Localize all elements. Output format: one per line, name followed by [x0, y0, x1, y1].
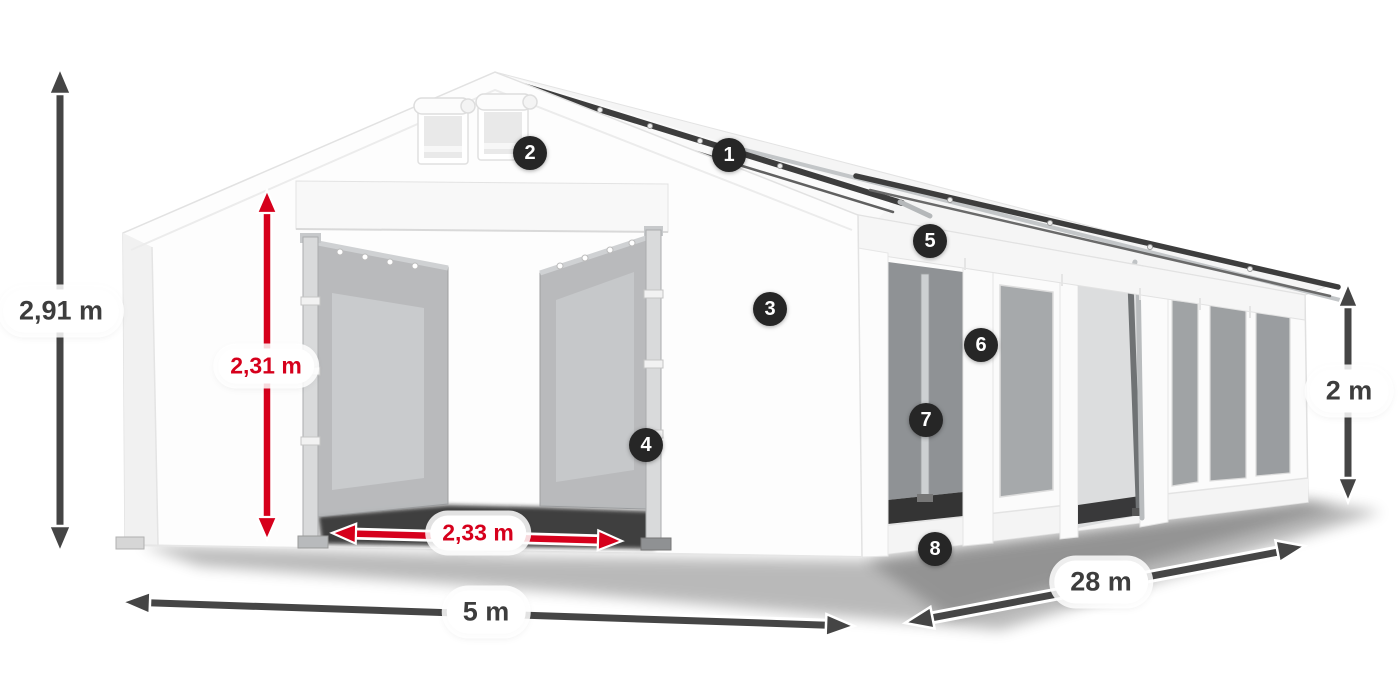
- dim-label-entrance-height: 2,31 m: [218, 349, 314, 384]
- callout-badge-6[interactable]: 6: [964, 328, 998, 362]
- callout-badge-3[interactable]: 3: [753, 292, 787, 326]
- entrance-left-door: [318, 242, 448, 517]
- side-middle-opening: [1078, 270, 1146, 528]
- entrance-right-door: [540, 237, 646, 509]
- dim-label-total-height: 2,91 m: [3, 290, 119, 333]
- side-open-section: [888, 262, 963, 524]
- tent-illustration: [0, 0, 1400, 700]
- callout-badge-7[interactable]: 7: [909, 403, 943, 437]
- callout-badge-2[interactable]: 2: [513, 136, 547, 170]
- dim-label-width: 5 m: [447, 591, 526, 634]
- callout-badge-8[interactable]: 8: [918, 532, 952, 566]
- tent-dimension-diagram: 2,91 m 2,31 m 2,33 m 5 m 28 m 2 m 1 2 3 …: [0, 0, 1400, 700]
- dim-label-entrance-width: 2,33 m: [430, 516, 526, 551]
- callout-badge-5[interactable]: 5: [913, 224, 947, 258]
- callout-badge-4[interactable]: 4: [629, 428, 663, 462]
- dim-label-length: 28 m: [1054, 561, 1148, 604]
- dim-label-side-height: 2 m: [1310, 370, 1389, 413]
- callout-badge-1[interactable]: 1: [712, 138, 746, 172]
- entrance-header-beam: [296, 181, 668, 232]
